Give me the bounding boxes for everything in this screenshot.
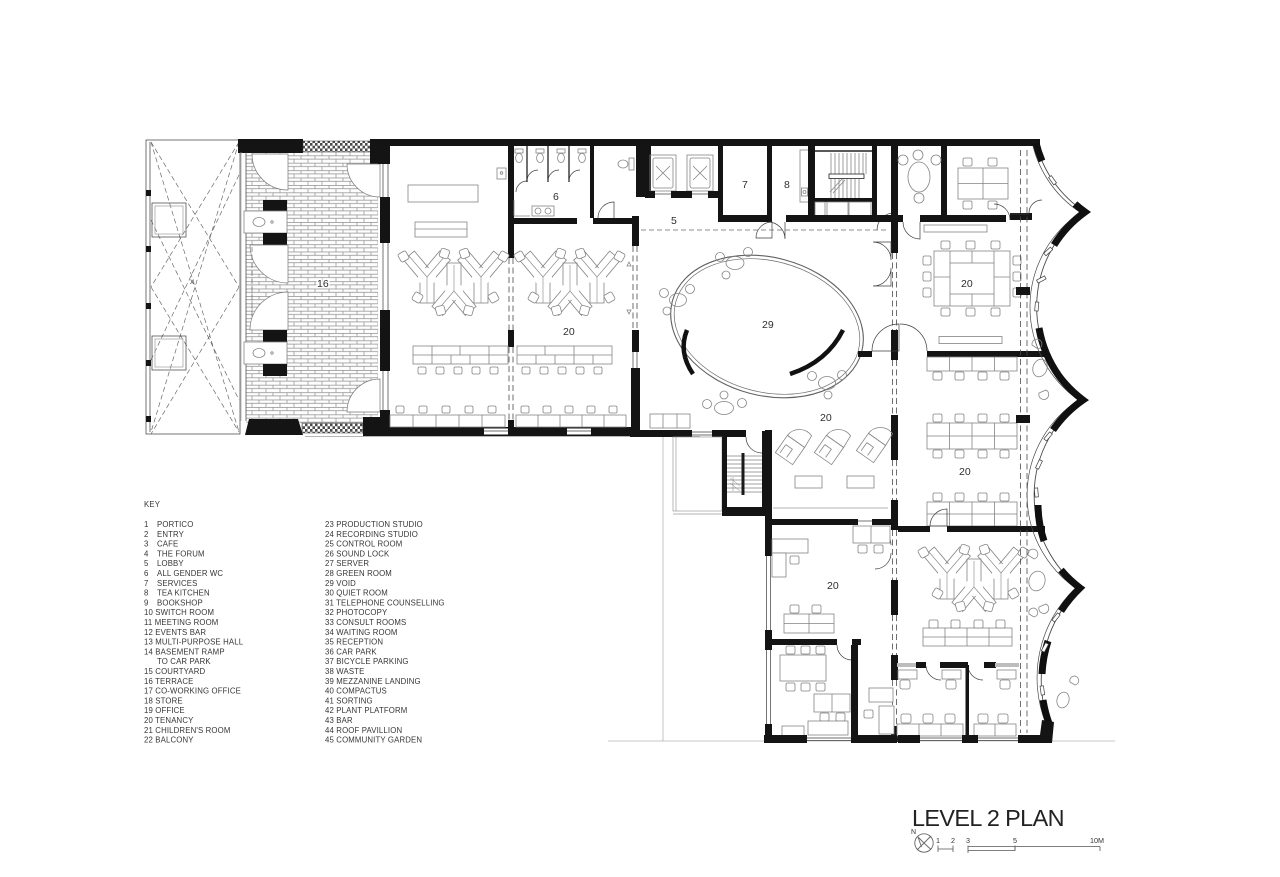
svg-text:TO CAR PARK: TO CAR PARK bbox=[157, 657, 211, 666]
svg-text:42 PLANT PLATFORM: 42 PLANT PLATFORM bbox=[325, 706, 407, 715]
svg-text:4: 4 bbox=[144, 549, 149, 558]
svg-text:31 TELEPHONE COUNSELLING: 31 TELEPHONE COUNSELLING bbox=[325, 598, 445, 607]
svg-text:29: 29 bbox=[762, 319, 774, 331]
svg-text:41 SORTING: 41 SORTING bbox=[325, 696, 373, 705]
svg-text:3: 3 bbox=[966, 836, 970, 845]
svg-text:8: 8 bbox=[144, 589, 149, 598]
svg-text:7: 7 bbox=[742, 179, 748, 191]
svg-text:20: 20 bbox=[961, 278, 973, 290]
svg-text:THE FORUM: THE FORUM bbox=[157, 549, 205, 558]
svg-text:30 QUIET ROOM: 30 QUIET ROOM bbox=[325, 589, 388, 598]
svg-text:33 CONSULT ROOMS: 33 CONSULT ROOMS bbox=[325, 618, 406, 627]
svg-text:16 TERRACE: 16 TERRACE bbox=[144, 677, 193, 686]
svg-text:12 EVENTS BAR: 12 EVENTS BAR bbox=[144, 628, 206, 637]
svg-text:15 COURTYARD: 15 COURTYARD bbox=[144, 667, 206, 676]
svg-text:2: 2 bbox=[951, 836, 955, 845]
svg-text:20: 20 bbox=[820, 412, 832, 424]
svg-text:TEA KITCHEN: TEA KITCHEN bbox=[157, 589, 210, 598]
svg-text:CAFE: CAFE bbox=[157, 540, 178, 549]
svg-text:38 WASTE: 38 WASTE bbox=[325, 667, 364, 676]
svg-text:19 OFFICE: 19 OFFICE bbox=[144, 706, 185, 715]
svg-text:39 MEZZANINE LANDING: 39 MEZZANINE LANDING bbox=[325, 677, 421, 686]
svg-text:45 COMMUNITY GARDEN: 45 COMMUNITY GARDEN bbox=[325, 736, 422, 745]
svg-text:35 RECEPTION: 35 RECEPTION bbox=[325, 638, 383, 647]
svg-text:32 PHOTOCOPY: 32 PHOTOCOPY bbox=[325, 608, 388, 617]
svg-text:26 SOUND LOCK: 26 SOUND LOCK bbox=[325, 549, 390, 558]
svg-text:11 MEETING ROOM: 11 MEETING ROOM bbox=[144, 618, 218, 627]
svg-text:9: 9 bbox=[144, 598, 149, 607]
svg-text:KEY: KEY bbox=[144, 500, 161, 509]
svg-text:20 TENANCY: 20 TENANCY bbox=[144, 716, 194, 725]
svg-text:PORTICO: PORTICO bbox=[157, 520, 193, 529]
svg-text:1: 1 bbox=[144, 520, 149, 529]
svg-text:7: 7 bbox=[144, 579, 149, 588]
svg-text:10 SWITCH ROOM: 10 SWITCH ROOM bbox=[144, 608, 214, 617]
svg-text:17 CO-WORKING OFFICE: 17 CO-WORKING OFFICE bbox=[144, 687, 241, 696]
svg-text:2: 2 bbox=[144, 530, 149, 539]
svg-text:20: 20 bbox=[827, 580, 839, 592]
svg-text:ENTRY: ENTRY bbox=[157, 530, 185, 539]
svg-text:27 SERVER: 27 SERVER bbox=[325, 559, 369, 568]
svg-text:LOBBY: LOBBY bbox=[157, 559, 184, 568]
svg-text:25 CONTROL ROOM: 25 CONTROL ROOM bbox=[325, 540, 402, 549]
svg-text:37 BICYCLE PARKING: 37 BICYCLE PARKING bbox=[325, 657, 409, 666]
svg-text:6: 6 bbox=[144, 569, 149, 578]
svg-text:ALL GENDER WC: ALL GENDER WC bbox=[157, 569, 223, 578]
svg-text:14 BASEMENT RAMP: 14 BASEMENT RAMP bbox=[144, 647, 225, 656]
svg-text:8: 8 bbox=[784, 179, 790, 191]
svg-text:1: 1 bbox=[936, 836, 940, 845]
svg-text:18 STORE: 18 STORE bbox=[144, 696, 183, 705]
svg-text:29 VOID: 29 VOID bbox=[325, 579, 356, 588]
svg-text:40 COMPACTUS: 40 COMPACTUS bbox=[325, 687, 387, 696]
svg-text:28 GREEN ROOM: 28 GREEN ROOM bbox=[325, 569, 392, 578]
svg-text:LEVEL 2 PLAN: LEVEL 2 PLAN bbox=[912, 805, 1064, 831]
svg-text:24 RECORDING STUDIO: 24 RECORDING STUDIO bbox=[325, 530, 418, 539]
svg-text:3: 3 bbox=[144, 540, 149, 549]
svg-text:N: N bbox=[911, 829, 916, 836]
svg-text:10M: 10M bbox=[1090, 836, 1104, 845]
svg-text:43 BAR: 43 BAR bbox=[325, 716, 353, 725]
svg-text:BOOKSHOP: BOOKSHOP bbox=[157, 598, 203, 607]
svg-text:20: 20 bbox=[563, 326, 575, 338]
svg-text:5: 5 bbox=[671, 215, 677, 227]
svg-text:16: 16 bbox=[317, 278, 329, 290]
svg-text:6: 6 bbox=[553, 191, 559, 203]
svg-text:36 CAR PARK: 36 CAR PARK bbox=[325, 647, 377, 656]
svg-text:5: 5 bbox=[144, 559, 149, 568]
svg-text:13 MULTI-PURPOSE HALL: 13 MULTI-PURPOSE HALL bbox=[144, 638, 244, 647]
svg-text:x: x bbox=[190, 277, 194, 286]
svg-text:44 ROOF PAVILLION: 44 ROOF PAVILLION bbox=[325, 726, 402, 735]
svg-text:SERVICES: SERVICES bbox=[157, 579, 198, 588]
svg-text:23 PRODUCTION STUDIO: 23 PRODUCTION STUDIO bbox=[325, 520, 423, 529]
svg-text:20: 20 bbox=[959, 466, 971, 478]
svg-text:34 WAITING ROOM: 34 WAITING ROOM bbox=[325, 628, 398, 637]
svg-text:5: 5 bbox=[1013, 836, 1017, 845]
svg-text:22 BALCONY: 22 BALCONY bbox=[144, 736, 194, 745]
svg-text:21 CHILDREN'S ROOM: 21 CHILDREN'S ROOM bbox=[144, 726, 231, 735]
